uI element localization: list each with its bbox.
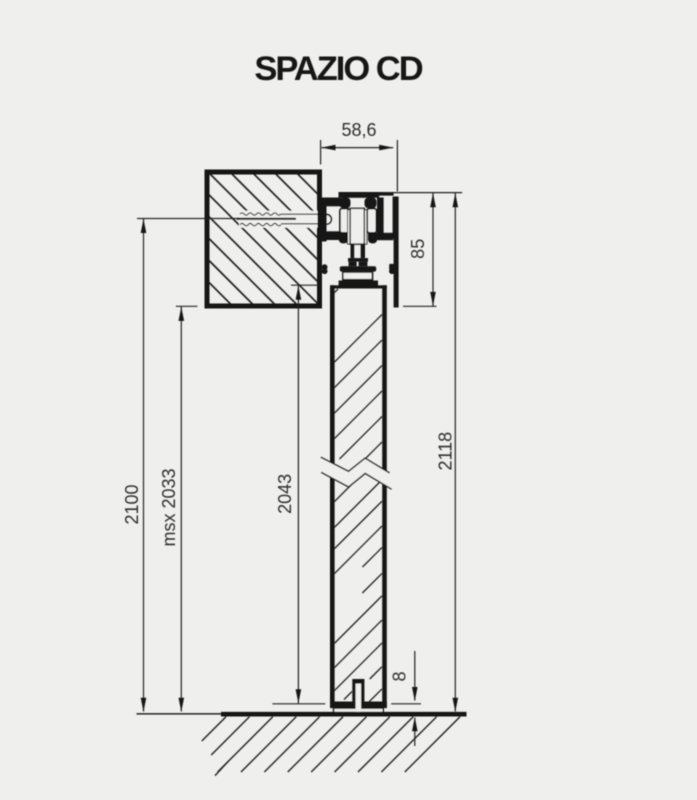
- svg-text:2118: 2118: [436, 432, 456, 471]
- svg-text:85: 85: [408, 239, 428, 259]
- svg-text:2043: 2043: [275, 474, 295, 514]
- svg-text:58,6: 58,6: [341, 120, 376, 140]
- svg-text:2100: 2100: [122, 484, 142, 524]
- svg-text:8: 8: [390, 671, 410, 681]
- svg-text:SPAZIO CD: SPAZIO CD: [254, 50, 422, 88]
- svg-text:msx 2033: msx 2033: [159, 468, 179, 546]
